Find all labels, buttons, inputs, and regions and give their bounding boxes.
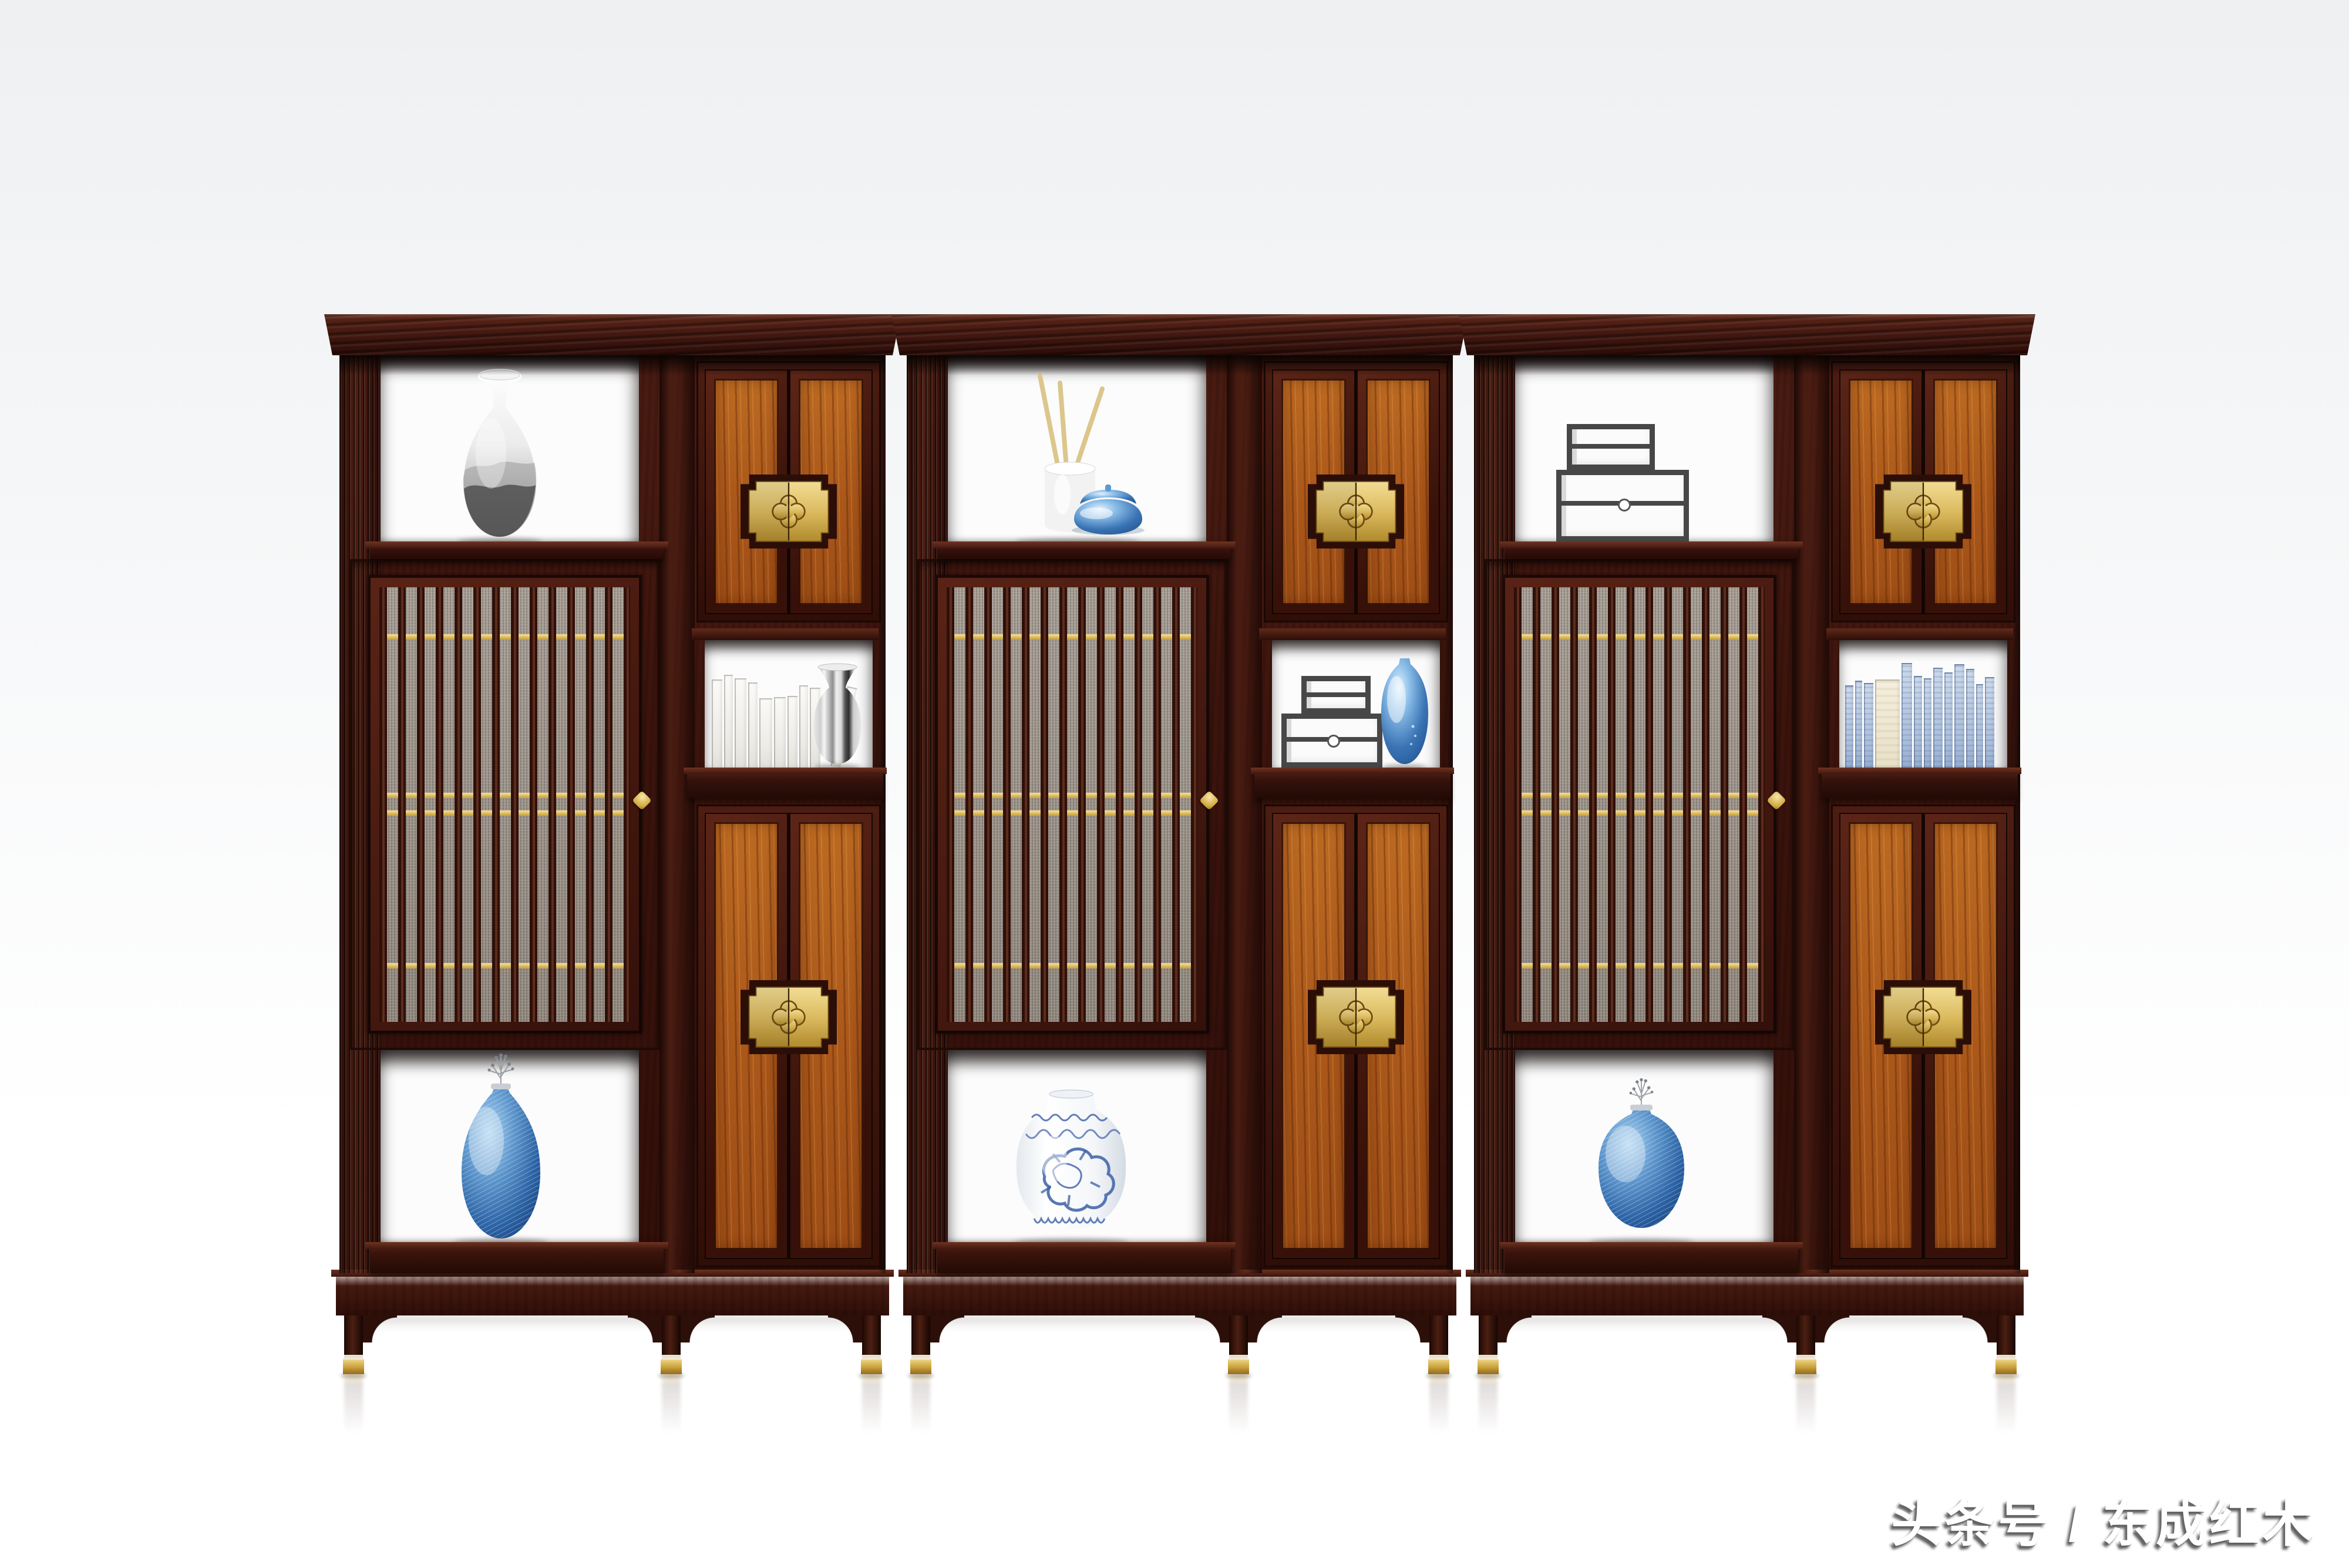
leg-spandrel	[1497, 1315, 1532, 1342]
cabinet-unit-middle	[907, 314, 1453, 1374]
lattice-cabinet	[917, 559, 1227, 1050]
blue-books	[1845, 663, 1994, 768]
cabinet-leg	[1796, 1315, 1815, 1374]
display-box-stack	[1281, 676, 1382, 768]
gold-bead-row	[947, 963, 1197, 968]
diamond-pull-handle	[1766, 790, 1786, 810]
upper-door-cabinet	[1259, 355, 1453, 628]
diamond-pull-handle	[1199, 790, 1219, 810]
cabinet-leg	[662, 1315, 681, 1374]
brass-foot-cap	[1995, 1358, 2017, 1374]
brass-quatrefoil-plate	[1882, 987, 1964, 1048]
leg-spandrel	[628, 1315, 662, 1342]
brass-foot-cap	[1478, 1358, 1499, 1374]
leg-spandrel	[1395, 1315, 1429, 1342]
brass-foot-cap	[343, 1358, 364, 1374]
bottom-display-niche	[948, 1050, 1206, 1242]
leg-spandrel	[1762, 1315, 1796, 1342]
cabinet-unit-right	[1474, 314, 2020, 1374]
round-blue-vase	[1580, 1078, 1703, 1242]
lower-door-cabinet	[692, 799, 886, 1273]
leg-spandrel	[681, 1315, 715, 1342]
brass-foot-cap	[910, 1358, 931, 1374]
cabinet-leg	[1479, 1315, 1497, 1374]
porcelain-dragon-jar	[1004, 1088, 1139, 1242]
display-box-stack	[1556, 424, 1689, 541]
cabinet-leg	[1997, 1315, 2015, 1374]
blue-teardrop-vase	[445, 1053, 557, 1242]
shelf-board	[687, 768, 883, 799]
cornice-board	[324, 314, 901, 355]
base-apron	[336, 1273, 889, 1315]
cabinet-unit-left	[339, 314, 886, 1374]
lattice-cabinet	[350, 559, 659, 1050]
gold-bead-row	[947, 793, 1197, 798]
base-apron	[903, 1273, 1456, 1315]
base-apron	[1470, 1273, 2024, 1315]
center-divider-post	[659, 355, 695, 1273]
cornice-board	[1459, 314, 2035, 355]
brass-quatrefoil-plate	[1315, 987, 1397, 1048]
brass-quatrefoil-plate	[748, 987, 830, 1048]
glossy-blue-vase	[1379, 656, 1431, 768]
leg-spandrel	[1248, 1315, 1282, 1342]
leg-spandrel	[1195, 1315, 1229, 1342]
shelf-board	[1505, 541, 1798, 559]
lattice-slats	[379, 587, 630, 1022]
cabinet-body	[907, 355, 1453, 1273]
brass-foot-cap	[1795, 1358, 1816, 1374]
center-divider-post	[1794, 355, 1829, 1273]
diamond-pull-handle	[632, 790, 652, 810]
top-display-niche	[381, 355, 639, 541]
lattice-cabinet	[1485, 559, 1794, 1050]
brass-foot-cap	[661, 1358, 682, 1374]
gold-bead-row	[1514, 963, 1765, 968]
gold-bead-row	[1514, 634, 1765, 640]
gold-bead-row	[947, 634, 1197, 640]
shelf-board	[370, 1242, 664, 1273]
brass-quatrefoil-plate	[1882, 481, 1964, 542]
shelf-board	[937, 1242, 1231, 1273]
gold-bead-row	[1514, 810, 1765, 816]
upper-door-cabinet	[1826, 355, 2020, 628]
lattice-door	[368, 575, 642, 1034]
shelf-board	[370, 541, 664, 559]
gold-bead-row	[379, 793, 630, 798]
gold-bead-row	[1514, 793, 1765, 798]
lower-door-cabinet	[1259, 799, 1453, 1273]
top-display-niche	[948, 355, 1206, 541]
cabinet-leg	[344, 1315, 363, 1374]
brass-foot-cap	[1228, 1358, 1249, 1374]
lower-door-cabinet	[1826, 799, 2020, 1273]
gold-bead-row	[379, 634, 630, 640]
shelf-board	[1254, 768, 1451, 799]
open-shelf	[705, 640, 873, 768]
lattice-door	[935, 575, 1209, 1034]
silver-striped-vase	[810, 663, 864, 768]
upper-door-cabinet	[692, 355, 886, 628]
leg-spandrel	[1815, 1315, 1849, 1342]
cabinet-leg	[1429, 1315, 1448, 1374]
shelf-board	[1822, 768, 2018, 799]
bottom-display-niche	[381, 1050, 639, 1242]
brass-quatrefoil-plate	[1315, 481, 1397, 542]
cabinet-body	[339, 355, 886, 1273]
gold-bead-row	[379, 810, 630, 816]
shelf-board	[1505, 1242, 1798, 1273]
bottom-display-niche	[1515, 1050, 1773, 1242]
shelf-sill	[1826, 628, 2013, 640]
shelf-sill	[1259, 628, 1446, 640]
brass-quatrefoil-plate	[748, 481, 830, 542]
cabinet-leg	[911, 1315, 930, 1374]
cabinet-leg	[862, 1315, 881, 1374]
cabinet-leg	[1229, 1315, 1248, 1374]
brass-foot-cap	[861, 1358, 882, 1374]
leg-spandrel	[1963, 1315, 1997, 1342]
ink-wash-vase	[450, 365, 550, 541]
shelf-board	[937, 541, 1231, 559]
gold-bead-row	[379, 963, 630, 968]
open-shelf	[1839, 640, 2007, 768]
shelf-sill	[692, 628, 879, 640]
leg-spandrel	[363, 1315, 397, 1342]
brass-foot-cap	[1428, 1358, 1449, 1374]
center-divider-post	[1227, 355, 1262, 1273]
cabinet-body	[1474, 355, 2020, 1273]
open-shelf	[1272, 640, 1440, 768]
top-display-niche	[1515, 355, 1773, 541]
lattice-slats	[1514, 587, 1765, 1022]
brush-pot-with-brushes	[1004, 365, 1150, 541]
leg-spandrel	[828, 1315, 862, 1342]
lattice-slats	[947, 587, 1197, 1022]
leg-spandrel	[930, 1315, 964, 1342]
watermark: 头条号 / 东成红木	[1891, 1482, 2316, 1556]
cornice-board	[891, 314, 1468, 355]
gold-bead-row	[947, 810, 1197, 816]
lattice-door	[1502, 575, 1776, 1034]
